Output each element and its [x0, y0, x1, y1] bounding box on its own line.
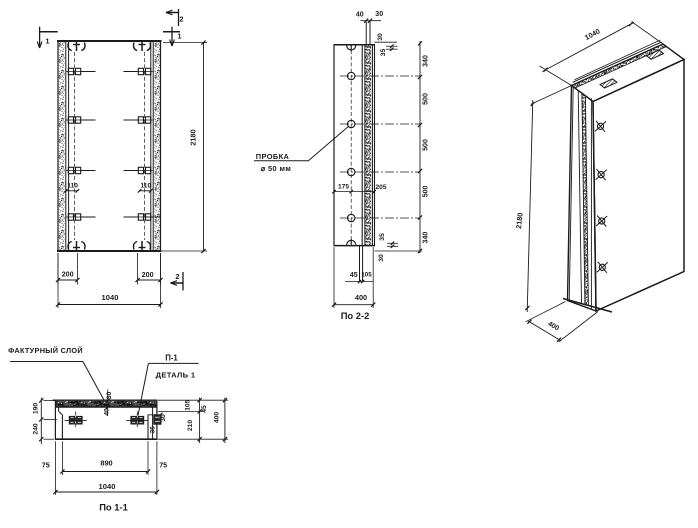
svg-text:⌀ 50 мм: ⌀ 50 мм	[261, 164, 292, 173]
svg-text:1040: 1040	[102, 293, 119, 302]
svg-text:2: 2	[175, 272, 179, 281]
svg-text:400: 400	[355, 293, 367, 302]
svg-text:205: 205	[375, 184, 386, 191]
svg-text:35: 35	[379, 233, 386, 241]
svg-text:30: 30	[375, 11, 383, 18]
svg-text:30: 30	[377, 33, 384, 41]
svg-text:45: 45	[350, 272, 358, 279]
svg-text:200: 200	[62, 269, 74, 278]
svg-text:30: 30	[106, 392, 113, 400]
svg-text:105: 105	[184, 399, 191, 410]
svg-text:500: 500	[422, 93, 429, 105]
svg-text:35: 35	[149, 426, 156, 434]
svg-text:По 2-2: По 2-2	[341, 310, 370, 321]
svg-text:П-1: П-1	[165, 354, 178, 363]
svg-text:400: 400	[213, 412, 220, 424]
svg-text:75: 75	[42, 461, 50, 470]
svg-text:105: 105	[361, 272, 372, 279]
svg-text:2: 2	[179, 15, 183, 24]
svg-text:45: 45	[201, 405, 208, 413]
svg-text:1040: 1040	[99, 482, 116, 491]
svg-text:340: 340	[422, 55, 429, 67]
svg-text:2180: 2180	[188, 129, 197, 145]
svg-text:110: 110	[140, 183, 151, 190]
svg-text:ДЕТАЛЬ 1: ДЕТАЛЬ 1	[156, 370, 196, 379]
svg-text:240: 240	[33, 423, 40, 435]
svg-text:1: 1	[177, 32, 181, 41]
svg-text:190: 190	[33, 403, 40, 415]
svg-text:40: 40	[356, 12, 364, 19]
svg-text:175: 175	[338, 184, 349, 191]
svg-text:2180: 2180	[514, 212, 525, 229]
svg-text:ФАКТУРНЫЙ СЛОЙ: ФАКТУРНЫЙ СЛОЙ	[8, 346, 83, 355]
svg-text:30: 30	[378, 254, 385, 262]
svg-text:ПРОБКА: ПРОБКА	[256, 152, 290, 161]
svg-text:75: 75	[159, 461, 167, 470]
svg-text:110: 110	[67, 183, 78, 190]
svg-text:210: 210	[187, 420, 194, 432]
svg-text:890: 890	[100, 459, 112, 468]
svg-text:1: 1	[45, 37, 49, 46]
svg-text:500: 500	[422, 185, 429, 197]
svg-text:По 1-1: По 1-1	[99, 502, 128, 513]
svg-text:35: 35	[380, 49, 387, 57]
svg-text:40: 40	[104, 408, 111, 416]
svg-text:340: 340	[422, 232, 429, 244]
svg-text:500: 500	[422, 139, 429, 151]
svg-text:200: 200	[142, 270, 154, 279]
